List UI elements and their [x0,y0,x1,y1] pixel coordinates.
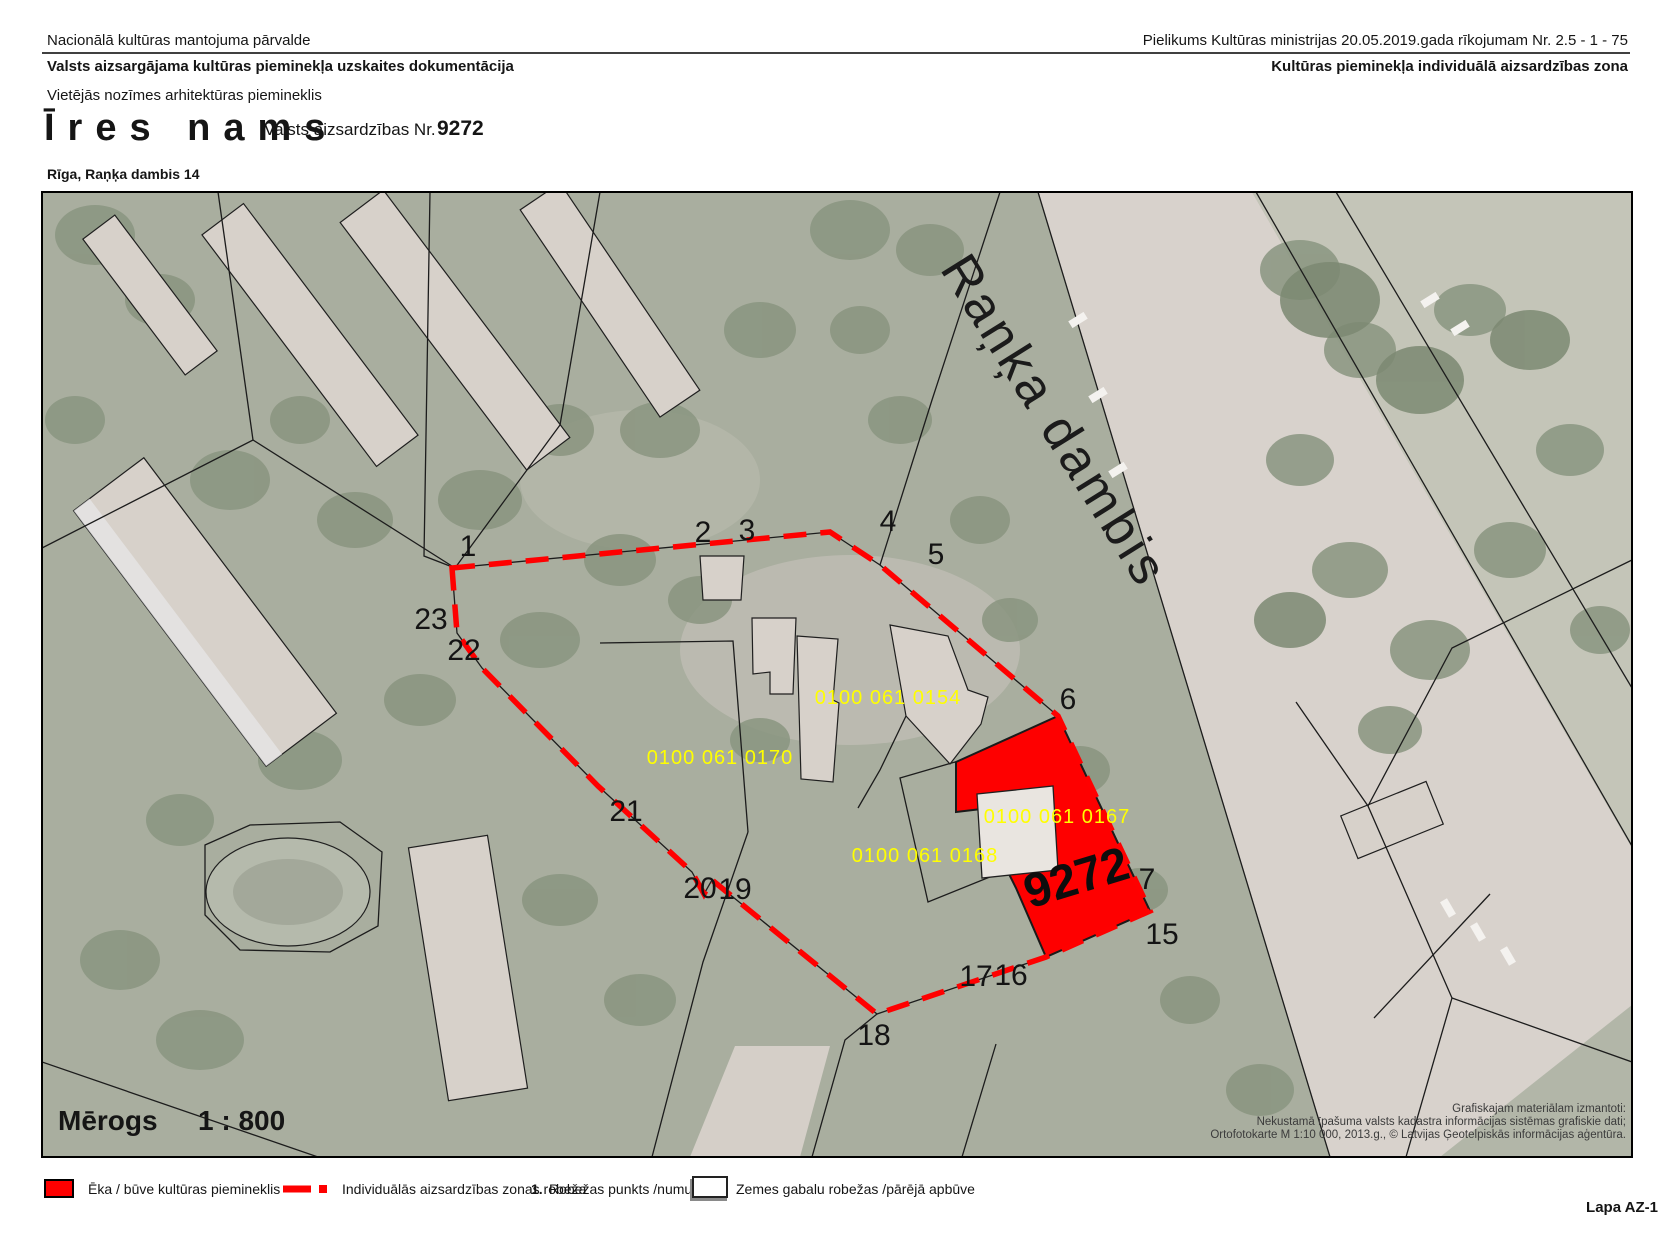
legend-item-label: Zemes gabalu robežas /pārējā apbūve [736,1181,975,1197]
legend-point-number-sample: 1. [531,1181,543,1197]
boundary-point-label: 22 [447,634,480,667]
protection-label: Valsts aizsardzības Nr. [264,120,436,139]
legend-item-label: Ēka / būve kultūras piemineklis [88,1181,280,1197]
pond-inner [233,859,343,925]
boundary-point-label: 20 [683,872,716,905]
map-sheet-svg: Nacionālā kultūras mantojuma pārvalde Pi… [0,0,1674,1240]
boundary-point-label: 16 [994,959,1027,992]
legend-boundary-dot [319,1185,327,1193]
map-canvas: 0100 061 0154 0100 061 0170 0100 061 016… [42,183,1632,1157]
boundary-point-label: 19 [718,873,751,906]
credits-line: Grafiskajam materiālam izmantoti: [1452,1103,1626,1115]
cadastral-parcel-label: 0100 061 0170 [647,747,793,769]
legend-parcel-swatch [693,1177,727,1197]
sheet-number: Lapa AZ-1 [1586,1199,1658,1216]
credits-line: Nekustamā īpašuma valsts kadastra inform… [1257,1116,1626,1128]
scale-value: 1 : 800 [198,1105,285,1136]
boundary-point-label: 6 [1060,683,1077,716]
credits-line: Ortofotokarte M 1:10 000, 2013.g., © Lat… [1210,1128,1626,1141]
monument-address: Rīga, Raņķa dambis 14 [47,166,200,182]
annex-reference: Pielikums Kultūras ministrijas 20.05.201… [1143,32,1628,49]
boundary-point-label: 1 [460,530,477,563]
legend-monument-swatch [45,1180,73,1197]
cadastral-parcel-label: 0100 061 0168 [852,845,998,867]
legend: Ēka / būve kultūras piemineklis Individu… [45,1177,975,1201]
boundary-point-label: 2 [695,516,712,549]
boundary-point-label: 17 [959,960,992,993]
boundary-point-label: 15 [1145,918,1178,951]
boundary-point-label: 4 [880,505,897,538]
zone-type: Kultūras pieminekļa individuālā aizsardz… [1271,58,1628,75]
boundary-point-label: 18 [857,1019,890,1052]
document-page: Nacionālā kultūras mantojuma pārvalde Pi… [0,0,1674,1240]
org-name: Nacionālā kultūras mantojuma pārvalde [47,32,310,49]
boundary-point-label: 5 [928,538,945,571]
boundary-point-label: 3 [739,514,756,547]
legend-item-label: Robežas punkts /numurs [549,1181,704,1197]
scale-label: Mērogs [58,1105,158,1136]
protection-number: 9272 [437,117,484,140]
cadastral-parcel-label: 0100 061 0154 [815,687,961,709]
boundary-point-label: 23 [414,603,447,636]
cadastral-parcel-label: 0100 061 0167 [984,806,1130,828]
boundary-point-label: 21 [609,795,642,828]
doc-type: Valsts aizsargājama kultūras pieminekļa … [47,58,515,75]
monument-class: Vietējās nozīmes arhitektūras pieminekli… [47,87,322,104]
boundary-point-label: 7 [1139,863,1156,896]
